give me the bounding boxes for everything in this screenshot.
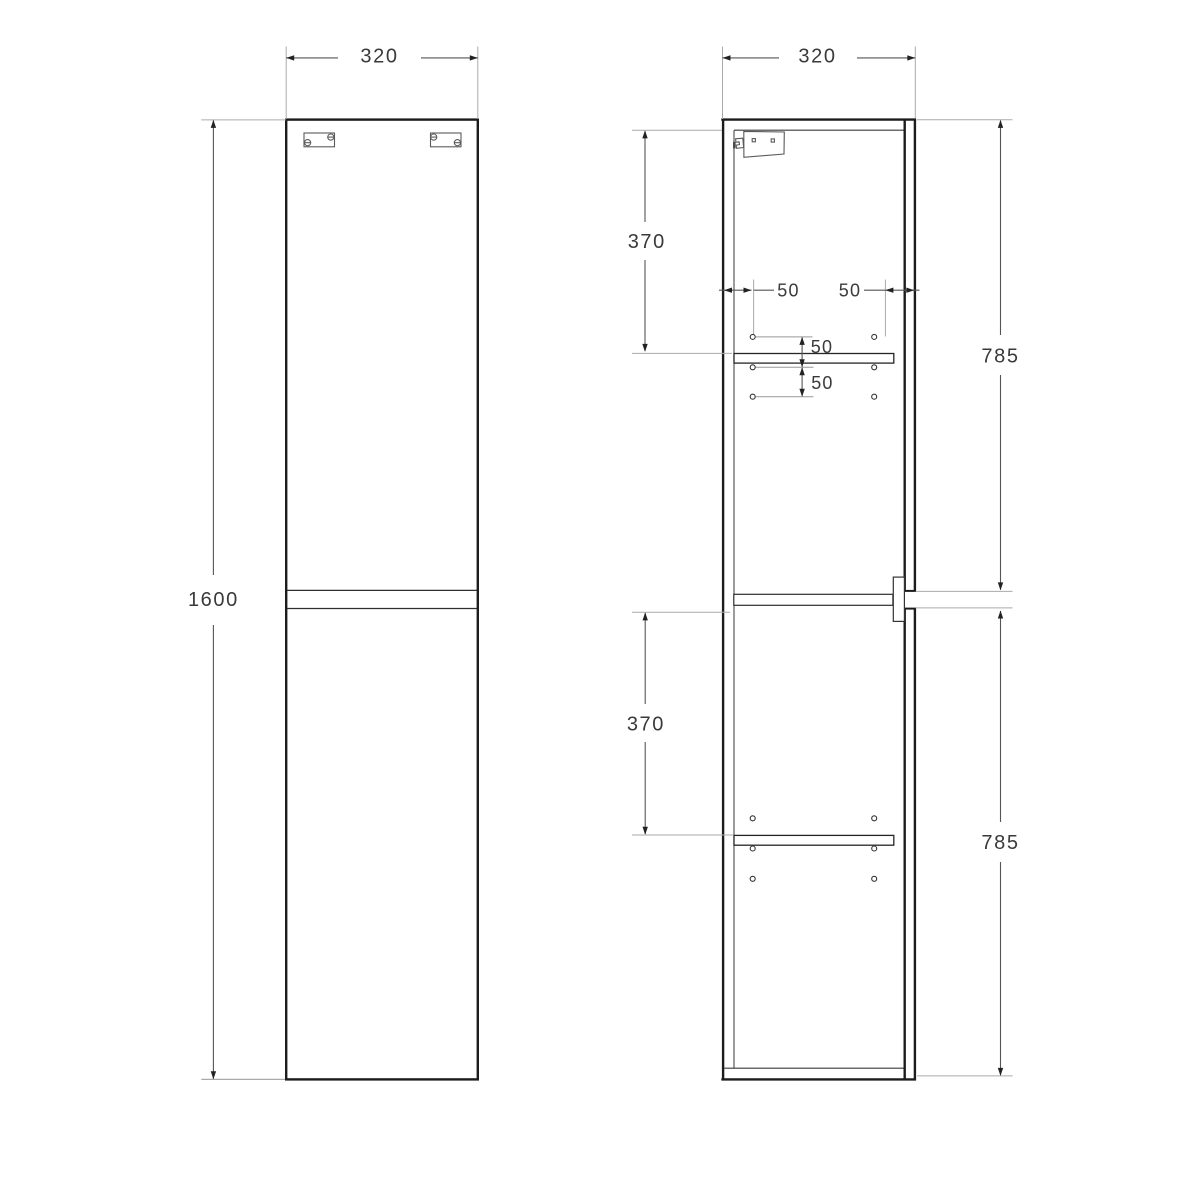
- svg-text:320: 320: [798, 46, 836, 68]
- svg-text:50: 50: [811, 337, 833, 357]
- svg-text:785: 785: [981, 346, 1019, 368]
- svg-text:50: 50: [839, 281, 861, 301]
- svg-text:785: 785: [981, 832, 1019, 854]
- svg-text:50: 50: [777, 281, 799, 301]
- svg-text:370: 370: [627, 714, 665, 736]
- svg-text:1600: 1600: [188, 589, 239, 611]
- svg-text:50: 50: [811, 373, 833, 393]
- svg-text:370: 370: [628, 231, 666, 253]
- svg-text:320: 320: [360, 46, 398, 68]
